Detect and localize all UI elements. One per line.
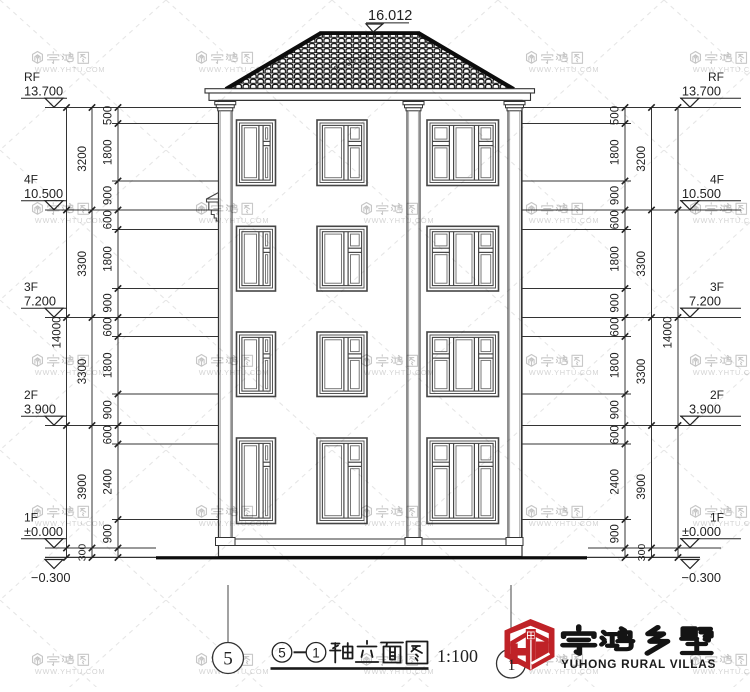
svg-text:WWW.YHTU.COM: WWW.YHTU.COM xyxy=(364,216,434,225)
svg-text:WWW.YHTU.COM: WWW.YHTU.COM xyxy=(35,667,105,676)
svg-text:WWW.YHTU.COM: WWW.YHTU.COM xyxy=(35,216,105,225)
svg-text:WWW.YHTU.COM: WWW.YHTU.COM xyxy=(693,65,750,74)
svg-text:WWW.YHTU.COM: WWW.YHTU.COM xyxy=(364,65,434,74)
svg-text:1:100: 1:100 xyxy=(437,646,478,666)
svg-text:WWW.YHTU.COM: WWW.YHTU.COM xyxy=(364,519,434,528)
svg-text:YUHONG RURAL VILLAS: YUHONG RURAL VILLAS xyxy=(561,657,716,671)
svg-text:WWW.YHTU.COM: WWW.YHTU.COM xyxy=(693,216,750,225)
svg-text:5: 5 xyxy=(223,649,233,670)
svg-text:1: 1 xyxy=(312,645,320,660)
svg-text:WWW.YHTU.COM: WWW.YHTU.COM xyxy=(364,368,434,377)
svg-text:WWW.YHTU.COM: WWW.YHTU.COM xyxy=(529,216,599,225)
svg-text:WWW.YHTU.COM: WWW.YHTU.COM xyxy=(35,519,105,528)
svg-text:WWW.YHTU.COM: WWW.YHTU.COM xyxy=(529,65,599,74)
svg-text:WWW.YHTU.COM: WWW.YHTU.COM xyxy=(35,368,105,377)
svg-text:WWW.YHTU.COM: WWW.YHTU.COM xyxy=(199,65,269,74)
svg-text:5: 5 xyxy=(278,645,286,660)
svg-text:WWW.YHTU.COM: WWW.YHTU.COM xyxy=(35,65,105,74)
svg-text:WWW.YHTU.COM: WWW.YHTU.COM xyxy=(199,216,269,225)
svg-text:WWW.YHTU.COM: WWW.YHTU.COM xyxy=(693,368,750,377)
svg-text:WWW.YHTU.COM: WWW.YHTU.COM xyxy=(693,519,750,528)
svg-text:WWW.YHTU.COM: WWW.YHTU.COM xyxy=(529,519,599,528)
svg-text:1: 1 xyxy=(508,657,516,674)
svg-text:WWW.YHTU.COM: WWW.YHTU.COM xyxy=(529,368,599,377)
svg-text:WWW.YHTU.COM: WWW.YHTU.COM xyxy=(199,368,269,377)
svg-text:WWW.YHTU.COM: WWW.YHTU.COM xyxy=(199,519,269,528)
